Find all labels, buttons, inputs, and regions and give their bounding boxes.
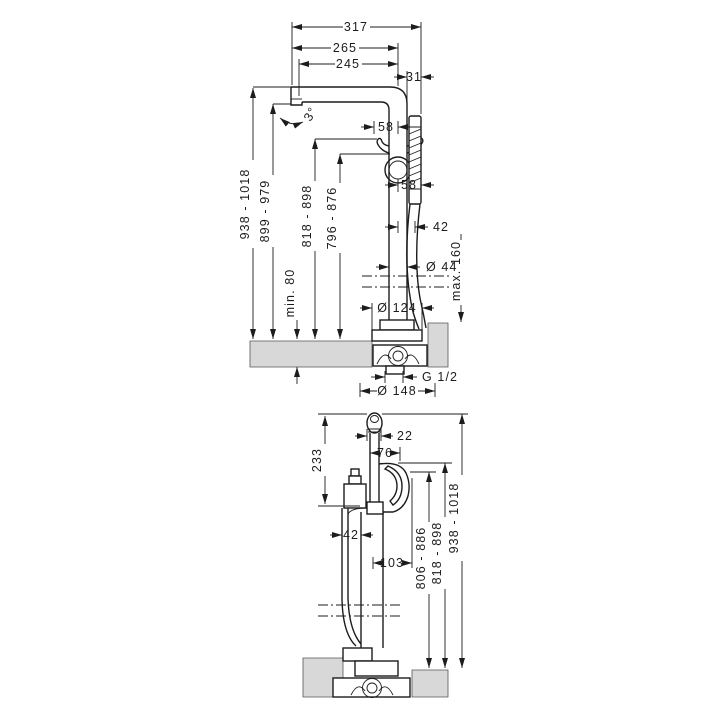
dim-floor-max: max. 160 (449, 234, 463, 322)
dim-spout-reach-inner: 245 (299, 57, 398, 96)
dim-hose-offset-front: 42 (330, 528, 373, 542)
dim-label-max160: max. 160 (449, 241, 463, 301)
floor-slab-right (428, 323, 448, 367)
dim-label-42-front: 42 (343, 528, 359, 542)
floor-slab-left (250, 341, 372, 367)
front-view: 22 76 233 42 103 806 - (303, 413, 468, 698)
diverter-box (344, 469, 366, 508)
dim-label-d148: Ø 148 (377, 384, 417, 398)
hose-coupling (367, 502, 383, 514)
dim-label-245: 245 (336, 57, 360, 71)
dim-label-265: 265 (333, 41, 357, 55)
dimension-drawing: 317 265 245 31 3° 58 (0, 0, 720, 720)
dim-label-899-979: 899 - 979 (258, 180, 272, 243)
dim-label-818-898-front: 818 - 898 (430, 522, 444, 585)
floor-slab-right-front (412, 670, 448, 697)
dim-label-796-876: 796 - 876 (325, 187, 339, 250)
handshower-head (367, 413, 382, 433)
dim-label-31: 31 (406, 70, 422, 84)
dim-spout-angle: 3° (280, 104, 320, 123)
side-view: 317 265 245 31 3° 58 (238, 20, 463, 398)
dim-label-58-lower: 58 (401, 178, 417, 192)
dim-label-42-side: 42 (433, 220, 449, 234)
riser-pipe (361, 512, 383, 648)
dim-label-min80: min. 80 (283, 269, 297, 318)
dim-axis-to-handshower: 58 (385, 178, 434, 192)
dim-handshower-offset: 31 (394, 70, 434, 101)
dim-label-103: 103 (380, 556, 404, 570)
basic-set-front (333, 678, 410, 698)
dim-label-938-1018-side: 938 - 1018 (238, 169, 252, 240)
dim-label-938-1018-front: 938 - 1018 (447, 483, 461, 554)
dim-thread: G 1/2 (371, 370, 458, 384)
dim-label-806-886: 806 - 886 (414, 527, 428, 590)
dim-label-76: 76 (377, 446, 393, 460)
dim-height-outlet-front: 806 - 886 (414, 472, 429, 668)
dim-height-spout-top-front: 818 - 898 (430, 463, 445, 668)
dim-label-3deg: 3° (301, 104, 320, 123)
basic-set-side (373, 345, 427, 374)
dim-height-total-front: 938 - 1018 (447, 414, 462, 668)
dim-label-g12: G 1/2 (422, 370, 458, 384)
spout-tip (291, 87, 302, 105)
escutcheon-side (372, 320, 422, 341)
dim-label-58-upper: 58 (378, 120, 394, 134)
dim-label-818-898-side: 818 - 898 (300, 185, 314, 248)
dim-handshower-width: 22 (355, 429, 413, 443)
thread-nipple (386, 366, 404, 374)
dim-holder-to-axis: 58 (361, 120, 411, 134)
escutcheon-front (343, 648, 398, 676)
dim-base-diameter: Ø 148 (360, 383, 435, 398)
dim-label-d124: Ø 124 (377, 301, 417, 315)
dim-spout-offset: 76 (370, 446, 400, 461)
technical-drawing-page: 317 265 245 31 3° 58 (0, 0, 720, 720)
dim-label-317: 317 (344, 20, 368, 34)
dim-label-22: 22 (397, 429, 413, 443)
dim-label-233: 233 (310, 448, 324, 472)
